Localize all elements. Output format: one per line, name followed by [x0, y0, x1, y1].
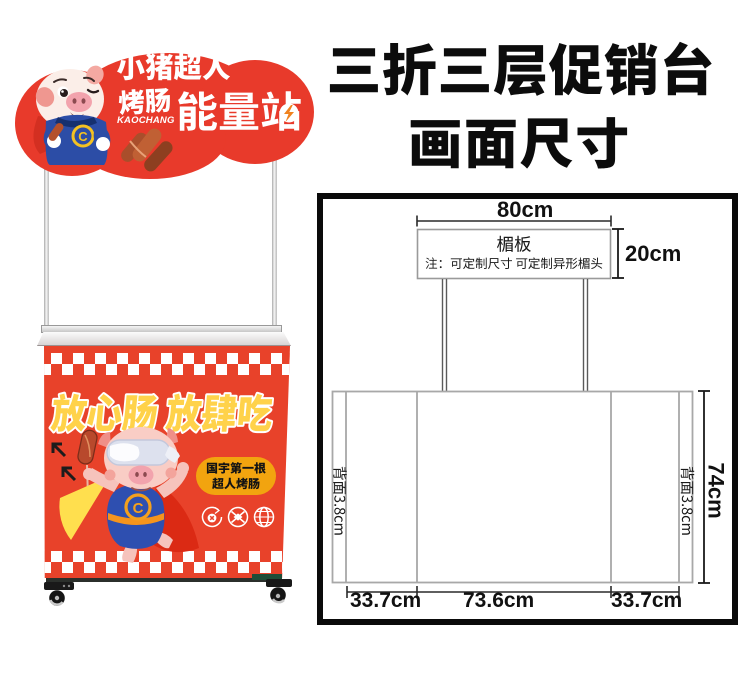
svg-text:KAOCHANG: KAOCHANG	[117, 115, 175, 126]
svg-text:C: C	[78, 129, 88, 144]
svg-text:C: C	[133, 500, 144, 517]
